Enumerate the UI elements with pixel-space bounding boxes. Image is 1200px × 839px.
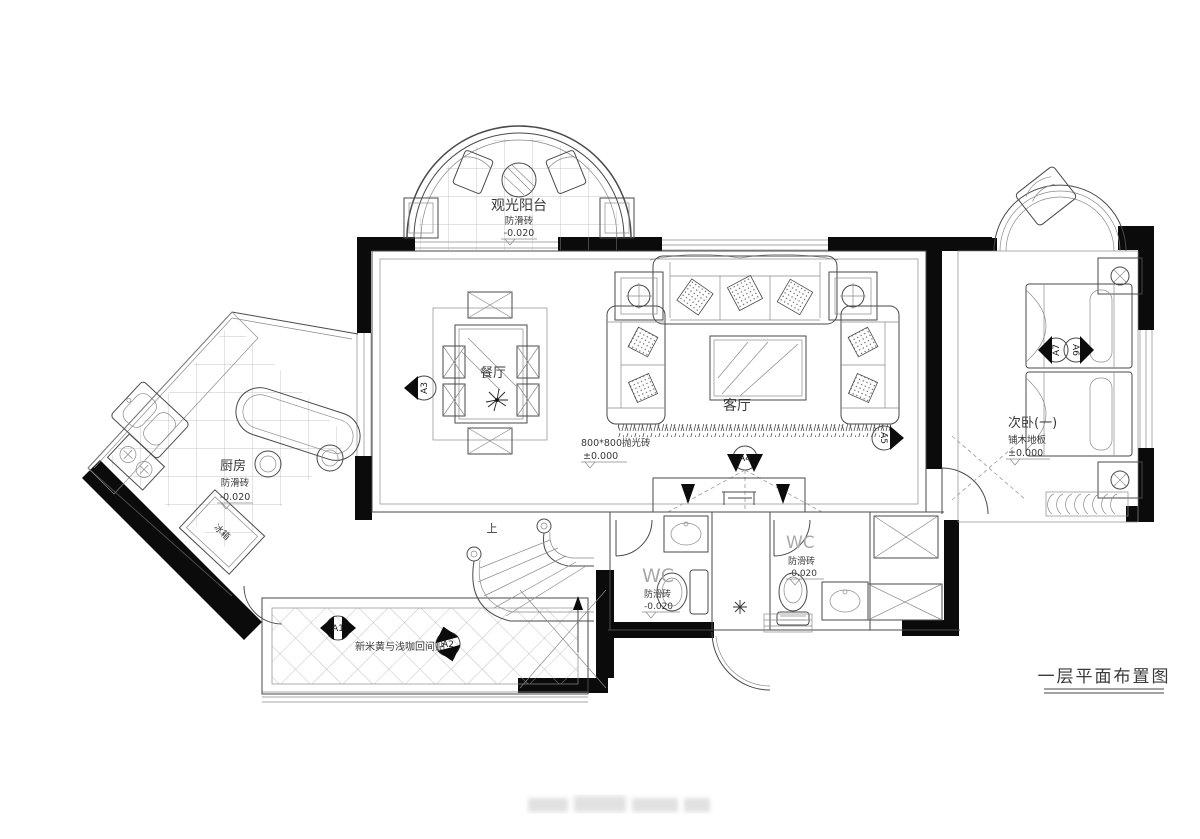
kitchen: 冰箱 厨房 防滑砖 -0.020 (88, 312, 366, 624)
elevation-marker-a4: A4 (668, 446, 822, 512)
wc-right-label: WC (786, 533, 815, 553)
wc-left-floor-note: 防滑砖 (644, 588, 671, 600)
kitchen-floor-note: 防滑砖 (221, 477, 250, 489)
living-room: 客厅 800*800抛光砖 ±0.000 (581, 254, 899, 468)
table-plant (486, 389, 508, 411)
balcony-level: -0.020 (504, 228, 535, 239)
kitchen-level: -0.020 (220, 492, 251, 503)
balcony-floor-note: 防滑砖 (505, 215, 534, 227)
marker-a7-label: A7 (1052, 344, 1062, 356)
entry-cabinets (868, 516, 942, 620)
dining-label: 餐厅 (480, 365, 506, 381)
watermark (528, 796, 710, 812)
stairs-up-label: 上 (487, 522, 498, 535)
floor-drain-symbol (733, 600, 747, 614)
balcony: 观光阳台 防滑砖 -0.020 (404, 126, 636, 252)
side-table-right (829, 272, 877, 320)
wc-left: WC 防滑砖 -0.020 (616, 516, 708, 618)
kitchen-label: 厨房 (220, 458, 246, 474)
wc-left-sink (664, 516, 708, 552)
drawing-title-block: 一层平面布置图 (1038, 667, 1171, 693)
wc-right-floor-note: 防滑砖 (788, 555, 815, 567)
sofa-three-seat (653, 256, 837, 324)
marker-a3-label: A3 (420, 382, 430, 394)
drawing-title: 一层平面布置图 (1038, 667, 1171, 687)
floor-plan-canvas: 观光阳台 防滑砖 -0.020 餐厅 A3 (0, 0, 1200, 839)
elevation-marker-a3: A3 (404, 376, 436, 400)
side-table-left (615, 272, 663, 320)
coffee-table (710, 336, 806, 400)
living-level: ±0.000 (583, 451, 618, 462)
wc-left-level: -0.020 (644, 602, 673, 612)
nightstand-bottom (1098, 462, 1142, 498)
wc-left-label: WC (642, 565, 674, 587)
hallway-floor-note: 新米黄与浅咖回间贴 (355, 640, 445, 653)
marker-a4-label: A4 (739, 454, 751, 464)
marker-a6-label: A6 (1070, 344, 1080, 356)
loveseat-left (607, 306, 665, 424)
carpet-fringe (618, 424, 892, 437)
bedroom-label: 次卧(一) (1008, 415, 1057, 431)
loveseat-right (841, 306, 899, 424)
nightstand-top (1098, 258, 1142, 294)
floor-plan-page: 观光阳台 防滑砖 -0.020 餐厅 A3 (0, 0, 1200, 839)
wc-right-level: -0.020 (788, 569, 817, 579)
living-floor-note: 800*800抛光砖 (581, 437, 651, 449)
living-label: 客厅 (723, 397, 751, 414)
dining-room: 餐厅 (433, 292, 547, 454)
marker-a5-label: A5 (878, 432, 888, 444)
hallway: 新米黄与浅咖回间贴 A1 A2 (262, 598, 588, 694)
bedroom-rack (1046, 492, 1128, 516)
bedroom-floor-note: 铺木地板 (1008, 434, 1047, 446)
bedroom-level: ±0.000 (1008, 448, 1043, 459)
tv-cabinet (653, 478, 805, 512)
bedroom: 次卧(一) 铺木地板 ±0.000 A7 A6 (952, 165, 1142, 522)
balcony-label: 观光阳台 (491, 198, 547, 214)
wc-right: WC 防滑砖 -0.020 (774, 520, 868, 625)
entry-step-mat (764, 614, 812, 632)
marker-a1-label: A1 (332, 624, 344, 634)
wc-right-sink (822, 582, 868, 620)
marker-a2-label: A2 (442, 640, 454, 650)
wc-right-toilet (777, 573, 809, 625)
